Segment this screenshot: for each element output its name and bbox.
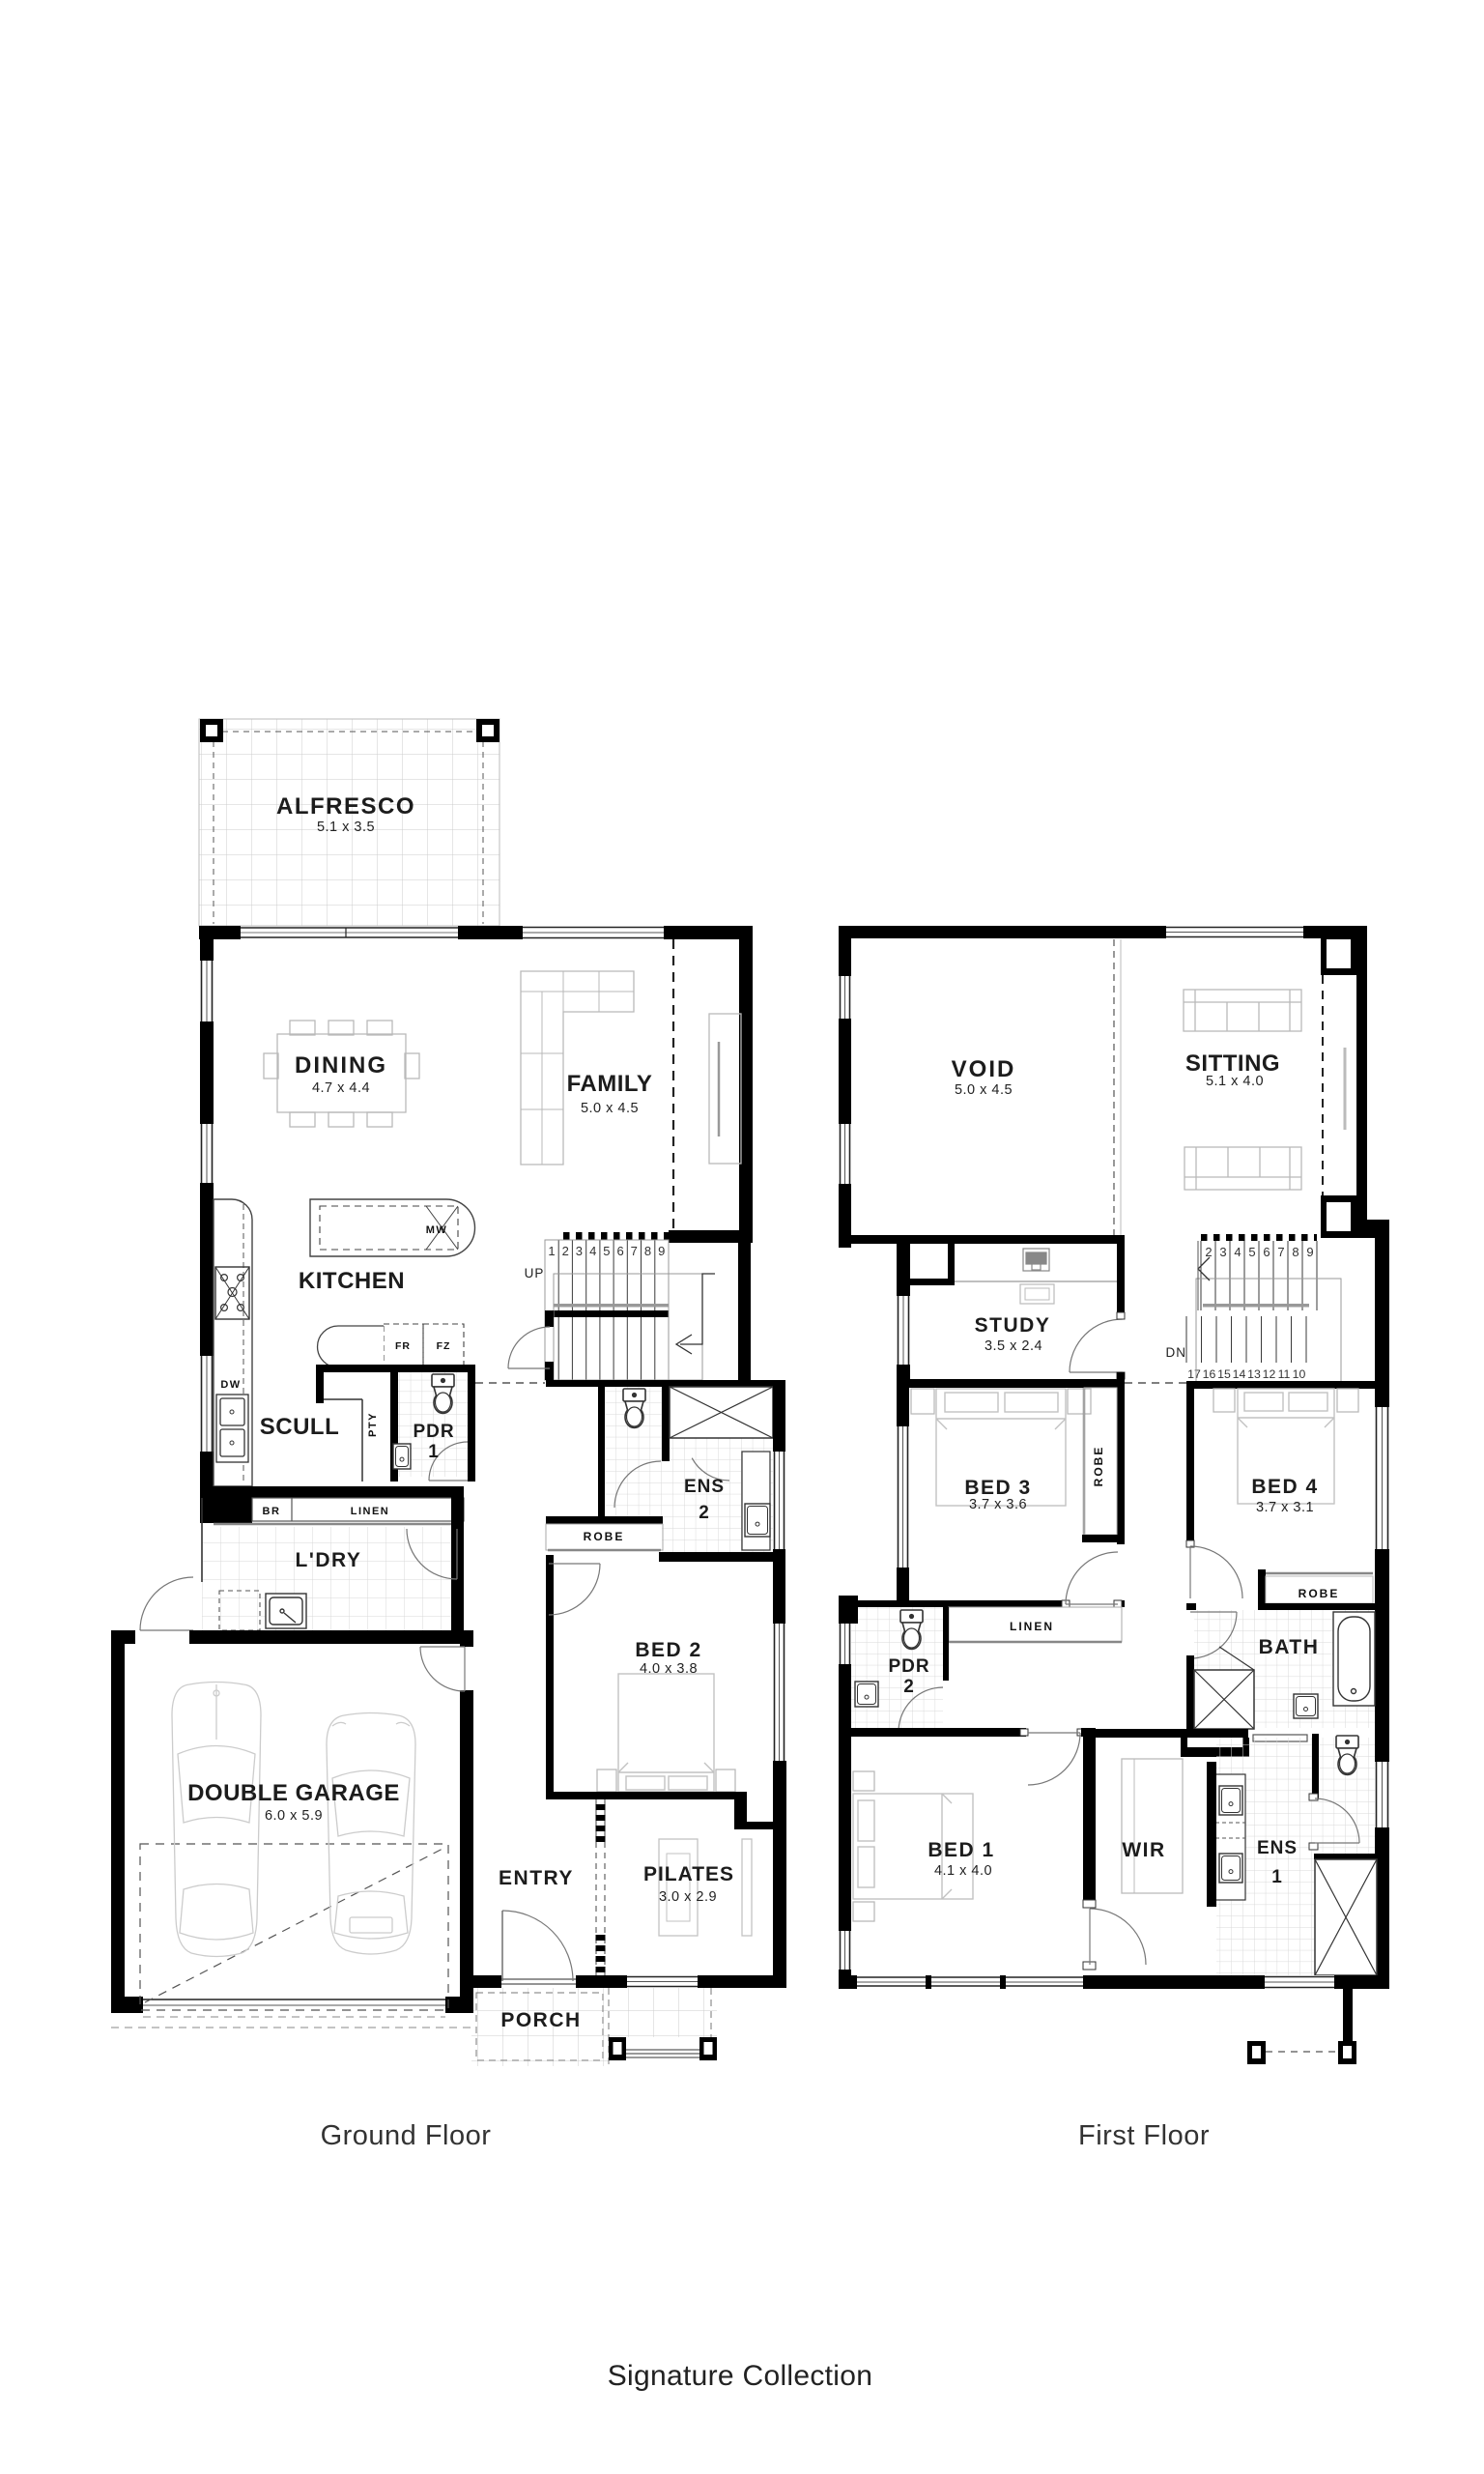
svg-text:4.1 x 4.0: 4.1 x 4.0 — [934, 1863, 992, 1879]
svg-text:ENTRY: ENTRY — [499, 1867, 574, 1889]
svg-text:BR: BR — [263, 1506, 281, 1517]
svg-text:4.7 x 4.4: 4.7 x 4.4 — [312, 1080, 370, 1096]
svg-text:PORCH: PORCH — [500, 2009, 581, 2031]
svg-text:3.7 x 3.1: 3.7 x 3.1 — [1256, 1500, 1314, 1515]
svg-text:2: 2 — [1205, 1245, 1212, 1259]
svg-text:13: 13 — [1247, 1367, 1261, 1381]
svg-text:2: 2 — [903, 1677, 915, 1697]
svg-text:ALFRESCO: ALFRESCO — [276, 793, 415, 820]
svg-text:SITTING: SITTING — [1185, 1050, 1280, 1077]
svg-text:15: 15 — [1217, 1367, 1231, 1381]
svg-text:DW: DW — [220, 1379, 241, 1391]
svg-text:UP: UP — [525, 1266, 545, 1280]
svg-text:BED 3: BED 3 — [964, 1477, 1031, 1499]
svg-text:1: 1 — [548, 1244, 555, 1258]
svg-text:ROBE: ROBE — [1092, 1446, 1105, 1487]
svg-text:FZ: FZ — [437, 1340, 451, 1352]
svg-text:9: 9 — [1306, 1245, 1313, 1259]
svg-text:PDR: PDR — [888, 1656, 929, 1677]
svg-text:WIR: WIR — [1122, 1839, 1165, 1861]
svg-text:DOUBLE GARAGE: DOUBLE GARAGE — [187, 1780, 400, 1806]
svg-text:5.1 x 3.5: 5.1 x 3.5 — [317, 820, 375, 835]
svg-text:VOID: VOID — [952, 1056, 1016, 1082]
svg-text:4.0 x 3.8: 4.0 x 3.8 — [640, 1661, 698, 1677]
svg-text:5.0 x 4.5: 5.0 x 4.5 — [581, 1101, 639, 1116]
svg-text:6: 6 — [1263, 1245, 1270, 1259]
svg-text:ROBE: ROBE — [584, 1530, 625, 1543]
svg-text:17: 17 — [1187, 1367, 1201, 1381]
svg-text:10: 10 — [1293, 1367, 1306, 1381]
svg-text:Signature Collection: Signature Collection — [608, 2360, 873, 2392]
svg-text:PTY: PTY — [367, 1412, 379, 1437]
svg-text:4: 4 — [1234, 1245, 1241, 1259]
svg-text:1: 1 — [1271, 1867, 1283, 1887]
svg-text:LINEN: LINEN — [351, 1506, 390, 1517]
svg-text:6.0 x 5.9: 6.0 x 5.9 — [265, 1808, 323, 1824]
svg-text:DINING: DINING — [295, 1052, 387, 1079]
svg-text:BATH: BATH — [1259, 1636, 1320, 1658]
svg-text:3.7 x 3.6: 3.7 x 3.6 — [969, 1497, 1027, 1512]
svg-text:5.1 x 4.0: 5.1 x 4.0 — [1206, 1074, 1264, 1089]
svg-text:14: 14 — [1233, 1367, 1246, 1381]
svg-text:FAMILY: FAMILY — [567, 1071, 653, 1097]
svg-text:KITCHEN: KITCHEN — [299, 1268, 405, 1294]
svg-text:LINEN: LINEN — [1010, 1620, 1054, 1633]
svg-text:3.5 x 2.4: 3.5 x 2.4 — [985, 1338, 1042, 1354]
svg-text:BED 1: BED 1 — [927, 1839, 994, 1861]
svg-text:ENS: ENS — [1257, 1838, 1298, 1858]
svg-text:BED 2: BED 2 — [635, 1639, 701, 1661]
svg-text:7: 7 — [631, 1244, 638, 1258]
svg-text:3.0 x 2.9: 3.0 x 2.9 — [659, 1889, 717, 1905]
svg-text:L'DRY: L'DRY — [296, 1549, 362, 1571]
svg-text:First Floor: First Floor — [1078, 2120, 1210, 2151]
svg-text:BED 4: BED 4 — [1251, 1476, 1318, 1498]
svg-text:DN: DN — [1166, 1345, 1187, 1360]
svg-text:3: 3 — [576, 1244, 583, 1258]
svg-text:STUDY: STUDY — [975, 1314, 1051, 1337]
svg-text:ENS: ENS — [684, 1477, 725, 1497]
svg-text:8: 8 — [644, 1244, 651, 1258]
svg-text:1: 1 — [428, 1442, 440, 1462]
svg-text:7: 7 — [1277, 1245, 1284, 1259]
svg-text:11: 11 — [1278, 1367, 1291, 1381]
svg-text:FR: FR — [395, 1340, 411, 1352]
svg-text:16: 16 — [1203, 1367, 1216, 1381]
svg-text:2: 2 — [699, 1503, 710, 1523]
svg-text:MW: MW — [426, 1224, 448, 1236]
svg-text:5: 5 — [603, 1244, 610, 1258]
svg-text:ROBE: ROBE — [1298, 1587, 1340, 1600]
svg-text:PILATES: PILATES — [643, 1863, 734, 1885]
svg-text:6: 6 — [616, 1244, 623, 1258]
svg-text:8: 8 — [1292, 1245, 1298, 1259]
svg-text:5: 5 — [1248, 1245, 1255, 1259]
svg-text:2: 2 — [562, 1244, 569, 1258]
svg-text:Ground Floor: Ground Floor — [321, 2120, 492, 2151]
svg-text:9: 9 — [658, 1244, 665, 1258]
svg-text:3: 3 — [1219, 1245, 1226, 1259]
svg-text:12: 12 — [1263, 1367, 1276, 1381]
svg-text:4: 4 — [589, 1244, 596, 1258]
svg-text:5.0 x 4.5: 5.0 x 4.5 — [955, 1082, 1013, 1098]
svg-text:SCULL: SCULL — [260, 1414, 340, 1440]
svg-text:PDR: PDR — [413, 1422, 454, 1442]
